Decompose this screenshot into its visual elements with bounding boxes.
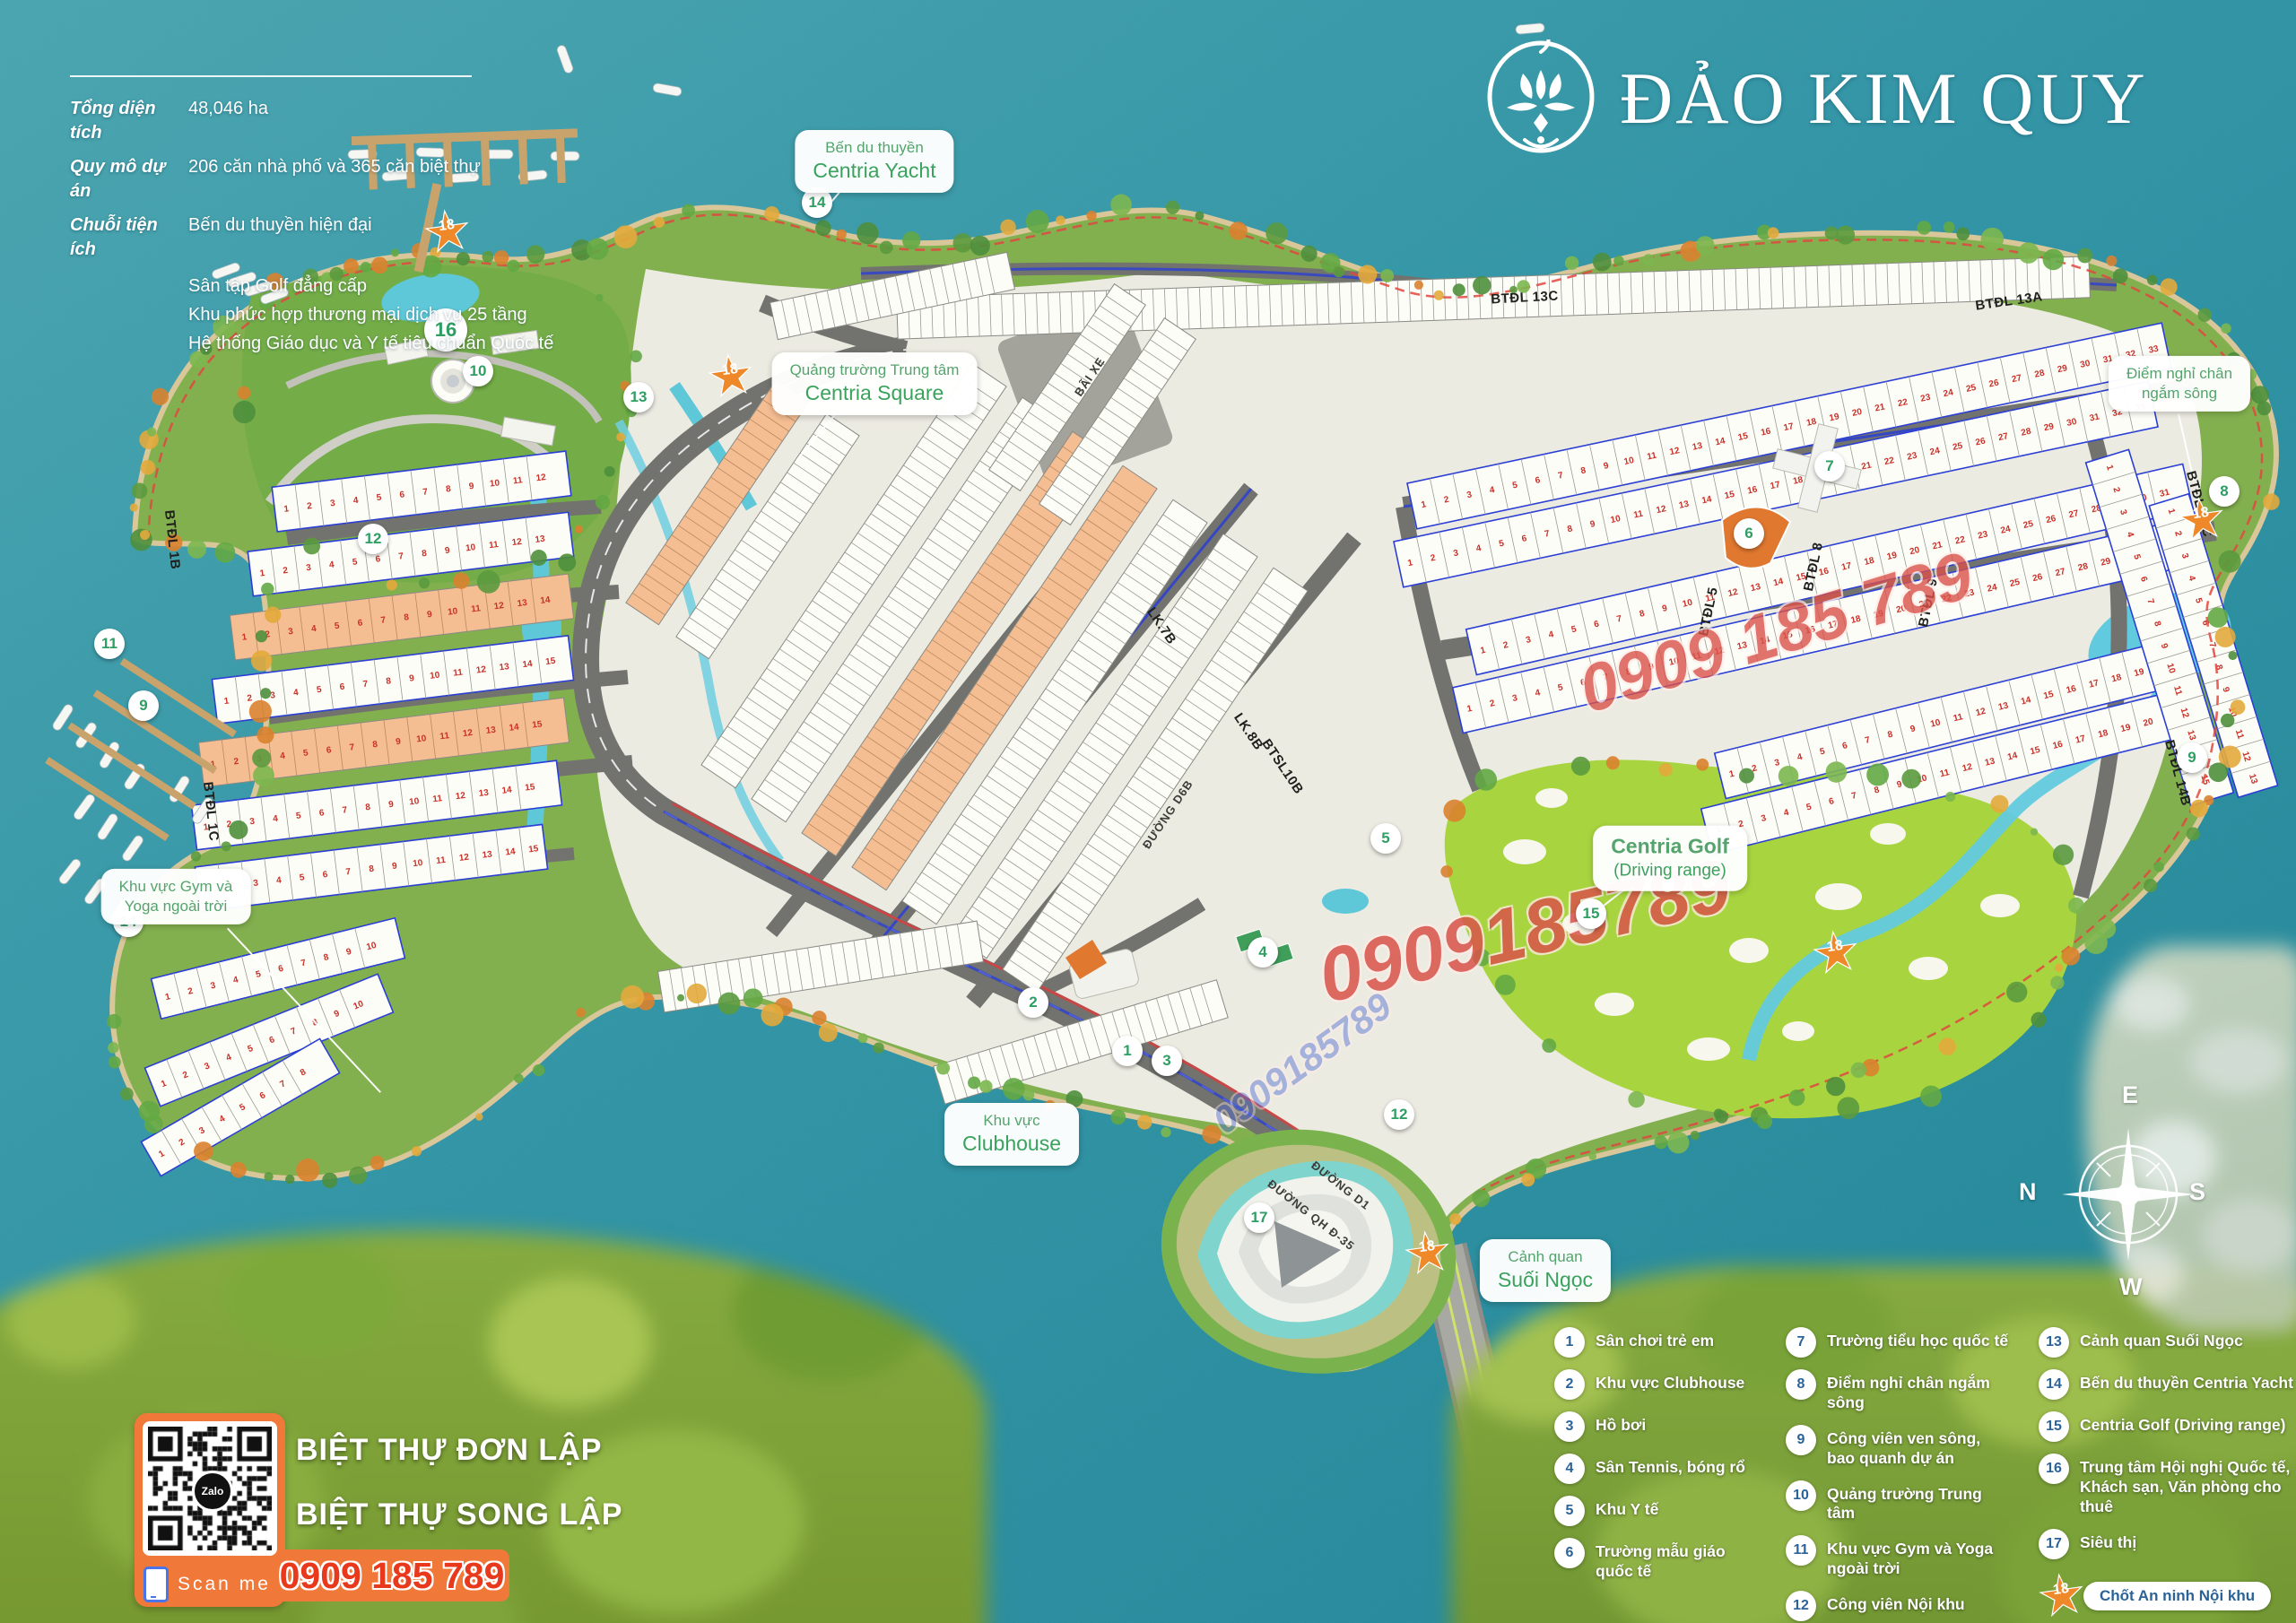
legend-label: Quảng trường Trung tâm [1827, 1480, 2012, 1524]
project-info-block: Tổng diện tích 48,046 ha Quy mô dự án 20… [70, 75, 553, 358]
svg-text:11: 11 [512, 475, 523, 486]
stat-label: Quy mô dự án [70, 155, 188, 204]
phone-number: 0909 185 789 [280, 1555, 505, 1597]
svg-text:10: 10 [413, 858, 424, 869]
scan-me-row: Scan me [143, 1567, 278, 1602]
legend-label: Trung tâm Hội nghị Quốc tế, Khách sạn, V… [2080, 1454, 2296, 1517]
legend-label: Trường tiểu học quốc tế [1827, 1327, 2008, 1351]
legend-number: 15 [2039, 1411, 2069, 1442]
divider [70, 75, 472, 77]
svg-text:15: 15 [525, 782, 536, 793]
phone-icon [143, 1567, 169, 1602]
svg-text:12: 12 [493, 601, 505, 612]
legend-label: Điểm nghỉ chân ngắm sông [1827, 1369, 2012, 1413]
stat-value: Bến du thuyền hiện đại [188, 213, 372, 262]
legend-label: Bến du thuyền Centria Yacht [2080, 1369, 2293, 1393]
masterplan-canvas: 1234567891011121314151617181920212223242… [0, 0, 2296, 1623]
legend-item-16: 16Trung tâm Hội nghị Quốc tế, Khách sạn,… [2039, 1454, 2296, 1517]
legend-column-3: 13Cảnh quan Suối Ngọc14Bến du thuyền Cen… [2039, 1327, 2296, 1623]
svg-text:13: 13 [517, 598, 528, 609]
svg-text:12: 12 [462, 728, 474, 739]
legend-label: Khu vực Gym và Yoga ngoài trời [1827, 1535, 2012, 1579]
legend-label: Trường mẫu giáo quốc tế [1596, 1538, 1759, 1582]
svg-text:11: 11 [489, 540, 500, 551]
amenity-item: Hệ thống Giáo dục và Y tế tiêu chuẩn Quố… [188, 329, 553, 358]
legend-item-10: 10Quảng trường Trung tâm [1786, 1480, 2012, 1524]
amenity-list: Sân tập Golf đẳng cấp Khu phức hợp thươn… [188, 272, 553, 358]
legend-item-11: 11Khu vực Gym và Yoga ngoài trời [1786, 1535, 2012, 1579]
promo-line-2: BIỆT THỰ SONG LẬP [296, 1497, 622, 1532]
svg-text:10: 10 [409, 796, 421, 807]
legend-number: 12 [1786, 1591, 1816, 1621]
phone-banner: 0909 185 789 [274, 1549, 509, 1601]
legend-column-2: 7Trường tiểu học quốc tế8Điểm nghỉ chân … [1786, 1327, 2012, 1623]
amenity-item: Khu phức hợp thương mại dịch vụ 25 tầng [188, 300, 553, 329]
svg-text:12: 12 [535, 473, 547, 483]
legend-item-15: 15Centria Golf (Driving range) [2039, 1411, 2296, 1442]
svg-text:10: 10 [465, 542, 476, 553]
amenity-item: Sân tập Golf đẳng cấp [188, 272, 553, 300]
security-label: Chốt An ninh Nội khu [2083, 1582, 2271, 1610]
svg-text:11: 11 [471, 603, 482, 614]
svg-text:11: 11 [453, 667, 464, 678]
legend-number: 9 [1786, 1425, 1816, 1455]
legend-column-1: 1Sân chơi trẻ em2Khu vực Clubhouse3Hồ bơ… [1554, 1327, 1759, 1623]
project-logo: ĐẢO KIM QUY [1482, 39, 2148, 158]
legend-label: Hồ bơi [1596, 1411, 1646, 1436]
svg-text:15: 15 [528, 844, 540, 855]
svg-text:11: 11 [436, 855, 447, 866]
svg-text:15: 15 [545, 656, 557, 667]
promo-line-1: BIỆT THỰ ĐƠN LẬP [296, 1433, 602, 1468]
svg-text:11: 11 [439, 731, 450, 742]
legend-label: Khu Y tế [1596, 1496, 1658, 1520]
svg-text:14: 14 [522, 659, 534, 670]
legend-label: Cảnh quan Suối Ngọc [2080, 1327, 2243, 1351]
scan-me-label: Scan me [178, 1574, 271, 1595]
legend-item-12: 12Công viên Nội khu [1786, 1591, 2012, 1621]
legend-number: 14 [2039, 1369, 2069, 1400]
svg-text:13: 13 [499, 662, 510, 673]
stat-label: Chuỗi tiện ích [70, 213, 188, 262]
svg-text:10: 10 [430, 671, 441, 681]
legend-number: 4 [1554, 1454, 1585, 1484]
legend-item-2: 2Khu vực Clubhouse [1554, 1369, 1759, 1400]
stat-value: 48,046 ha [188, 97, 268, 145]
legend-item-17: 17Siêu thị [2039, 1529, 2296, 1559]
svg-text:12: 12 [511, 537, 523, 548]
svg-text:12: 12 [475, 664, 487, 675]
compass-e: E [2122, 1081, 2138, 1109]
legend-item-14: 14Bến du thuyền Centria Yacht [2039, 1369, 2296, 1400]
legend-label: Centria Golf (Driving range) [2080, 1411, 2285, 1436]
legend-item-5: 5Khu Y tế [1554, 1496, 1759, 1526]
legend-label: Công viên ven sông, bao quanh dự án [1827, 1425, 1980, 1469]
legend: 1Sân chơi trẻ em2Khu vực Clubhouse3Hồ bơ… [1554, 1327, 2296, 1623]
compass-w: W [2119, 1273, 2142, 1301]
svg-text:12: 12 [458, 853, 470, 864]
svg-text:14: 14 [501, 785, 513, 796]
svg-text:15: 15 [532, 719, 544, 730]
legend-label: Khu vực Clubhouse [1596, 1369, 1744, 1393]
compass-s: S [2189, 1178, 2205, 1206]
legend-number: 2 [1554, 1369, 1585, 1400]
legend-label: Sân chơi trẻ em [1596, 1327, 1714, 1351]
legend-label: Công viên Nội khu [1827, 1591, 1965, 1615]
legend-item-8: 8Điểm nghỉ chân ngắm sông [1786, 1369, 2012, 1413]
legend-security-item: 18Chốt An ninh Nội khu [2039, 1573, 2296, 1619]
svg-text:10: 10 [489, 478, 500, 489]
zalo-logo: Zalo [192, 1471, 233, 1512]
logo-title: ĐẢO KIM QUY [1620, 56, 2148, 141]
stat-label: Tổng diện tích [70, 97, 188, 145]
legend-number: 3 [1554, 1411, 1585, 1442]
legend-number: 16 [2039, 1454, 2069, 1484]
legend-number: 8 [1786, 1369, 1816, 1400]
legend-label: Siêu thị [2080, 1529, 2136, 1553]
stat-value: 206 căn nhà phố và 365 căn biệt thự [188, 155, 481, 204]
svg-text:14: 14 [509, 723, 520, 733]
legend-number: 17 [2039, 1529, 2069, 1559]
security-star-icon: 18 [2036, 1569, 2089, 1622]
compass-rose: E S W N [2048, 1114, 2209, 1275]
svg-text:14: 14 [540, 595, 552, 606]
legend-number: 6 [1554, 1538, 1585, 1568]
logo-emblem-icon [1482, 39, 1600, 158]
compass-n: N [2019, 1178, 2037, 1206]
legend-number: 7 [1786, 1327, 1816, 1358]
legend-item-6: 6Trường mẫu giáo quốc tế [1554, 1538, 1759, 1582]
legend-label: Sân Tennis, bóng rổ [1596, 1454, 1745, 1478]
svg-text:12: 12 [455, 791, 466, 802]
svg-text:14: 14 [505, 846, 517, 857]
legend-item-1: 1Sân chơi trẻ em [1554, 1327, 1759, 1358]
svg-text:13: 13 [535, 534, 546, 545]
legend-number: 13 [2039, 1327, 2069, 1358]
svg-text:13: 13 [482, 849, 493, 860]
legend-item-7: 7Trường tiểu học quốc tế [1786, 1327, 2012, 1358]
svg-text:13: 13 [478, 788, 490, 799]
svg-text:13: 13 [485, 725, 497, 736]
legend-number: 10 [1786, 1480, 1816, 1511]
legend-item-9: 9Công viên ven sông, bao quanh dự án [1786, 1425, 2012, 1469]
svg-text:11: 11 [432, 794, 443, 804]
legend-number: 11 [1786, 1535, 1816, 1566]
svg-text:10: 10 [416, 733, 428, 744]
svg-text:10: 10 [448, 606, 459, 617]
legend-number: 5 [1554, 1496, 1585, 1526]
legend-item-13: 13Cảnh quan Suối Ngọc [2039, 1327, 2296, 1358]
legend-item-3: 3Hồ bơi [1554, 1411, 1759, 1442]
legend-item-4: 4Sân Tennis, bóng rổ [1554, 1454, 1759, 1484]
legend-number: 1 [1554, 1327, 1585, 1358]
zalo-qr-code: Zalo [143, 1421, 277, 1556]
